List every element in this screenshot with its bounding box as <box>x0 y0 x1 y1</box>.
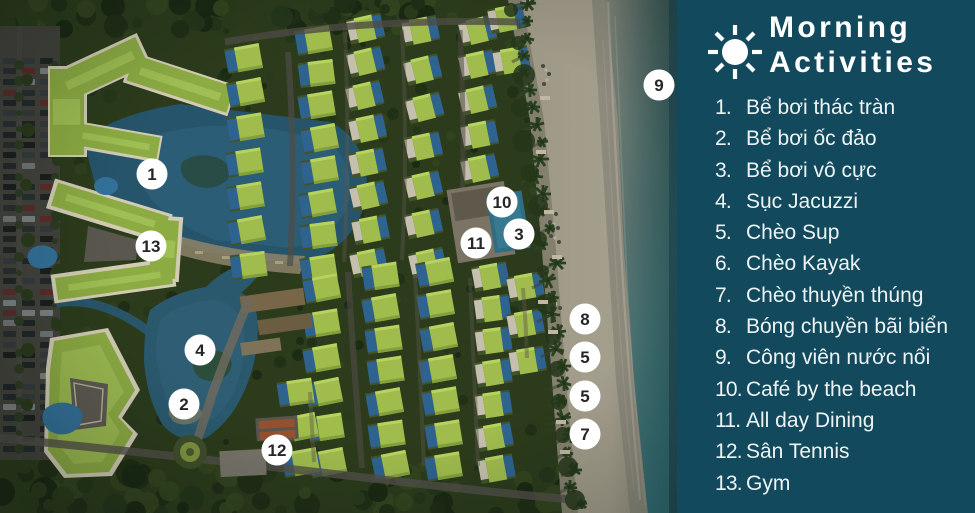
svg-text:5: 5 <box>580 348 589 367</box>
svg-text:12: 12 <box>268 441 287 460</box>
svg-text:8: 8 <box>580 310 589 329</box>
svg-text:10: 10 <box>493 193 512 212</box>
svg-text:9: 9 <box>654 76 663 95</box>
svg-text:13: 13 <box>142 237 161 256</box>
svg-text:7: 7 <box>580 425 589 444</box>
svg-text:5: 5 <box>580 387 589 406</box>
svg-text:4: 4 <box>195 341 205 360</box>
svg-text:2: 2 <box>179 395 188 414</box>
svg-text:11: 11 <box>467 234 485 253</box>
svg-text:3: 3 <box>514 225 523 244</box>
svg-text:1: 1 <box>147 165 156 184</box>
